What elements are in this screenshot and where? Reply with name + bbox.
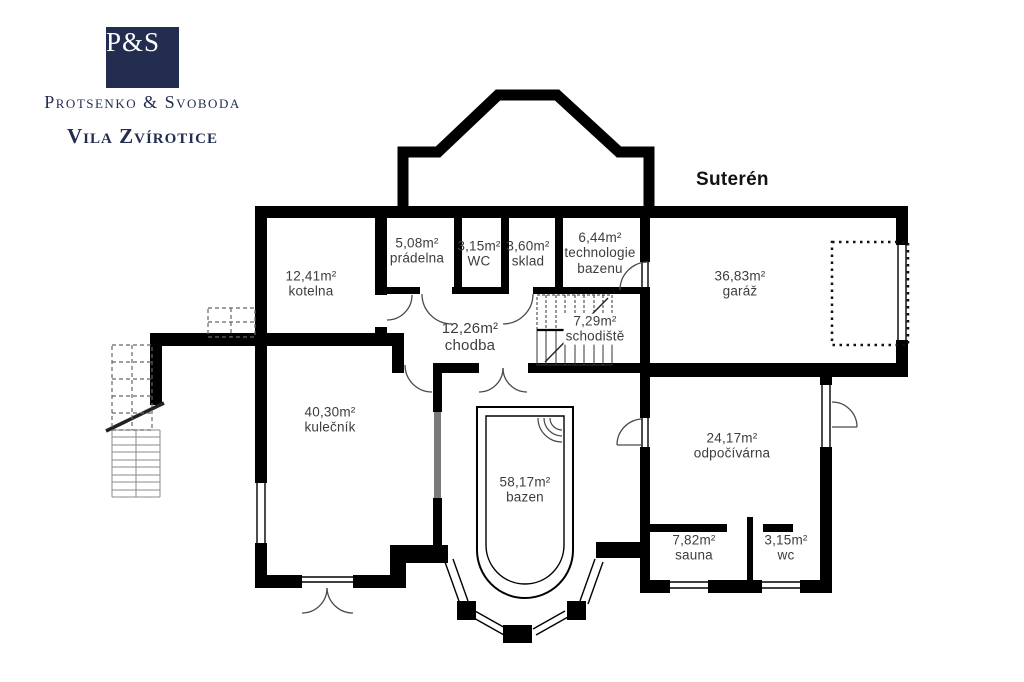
room-label-pradelna: 5,08m²prádelna xyxy=(390,236,444,267)
room-label-kulecnik: 40,30m²kulečník xyxy=(304,405,355,436)
room-label-schodiste: 7,29m²schodiště xyxy=(564,314,627,345)
light-wells xyxy=(112,308,255,430)
room-label-garaz: 36,83m²garáž xyxy=(715,269,766,300)
floorplan-drawing xyxy=(0,0,1024,682)
room-label-technologie-bazenu: 6,44m²technologie bazenu xyxy=(557,230,643,276)
room-label-wc-upper: 3,15m²WC xyxy=(457,239,500,270)
garage-door-clearance xyxy=(832,242,908,345)
room-label-sauna: 7,82m²sauna xyxy=(672,533,715,564)
pool-steps xyxy=(538,418,562,442)
walls xyxy=(150,206,908,643)
room-label-odpocivarna: 24,17m²odpočívárna xyxy=(694,431,771,462)
room-label-chodba: 12,26m²chodba xyxy=(442,320,498,354)
glass-partition xyxy=(434,412,441,498)
floorplan-page: P&S Protsenko & Svoboda Vila Zvírotice S… xyxy=(0,0,1024,682)
exterior-stairs xyxy=(106,403,164,497)
room-label-wc-lower: 3,15m²wc xyxy=(764,533,807,564)
room-label-sklad: 3,60m²sklad xyxy=(506,239,549,270)
room-label-bazen: 58,17m²bazen xyxy=(500,475,551,506)
top-bay-walls xyxy=(403,95,649,218)
room-label-kotelna: 12,41m²kotelna xyxy=(286,269,337,300)
